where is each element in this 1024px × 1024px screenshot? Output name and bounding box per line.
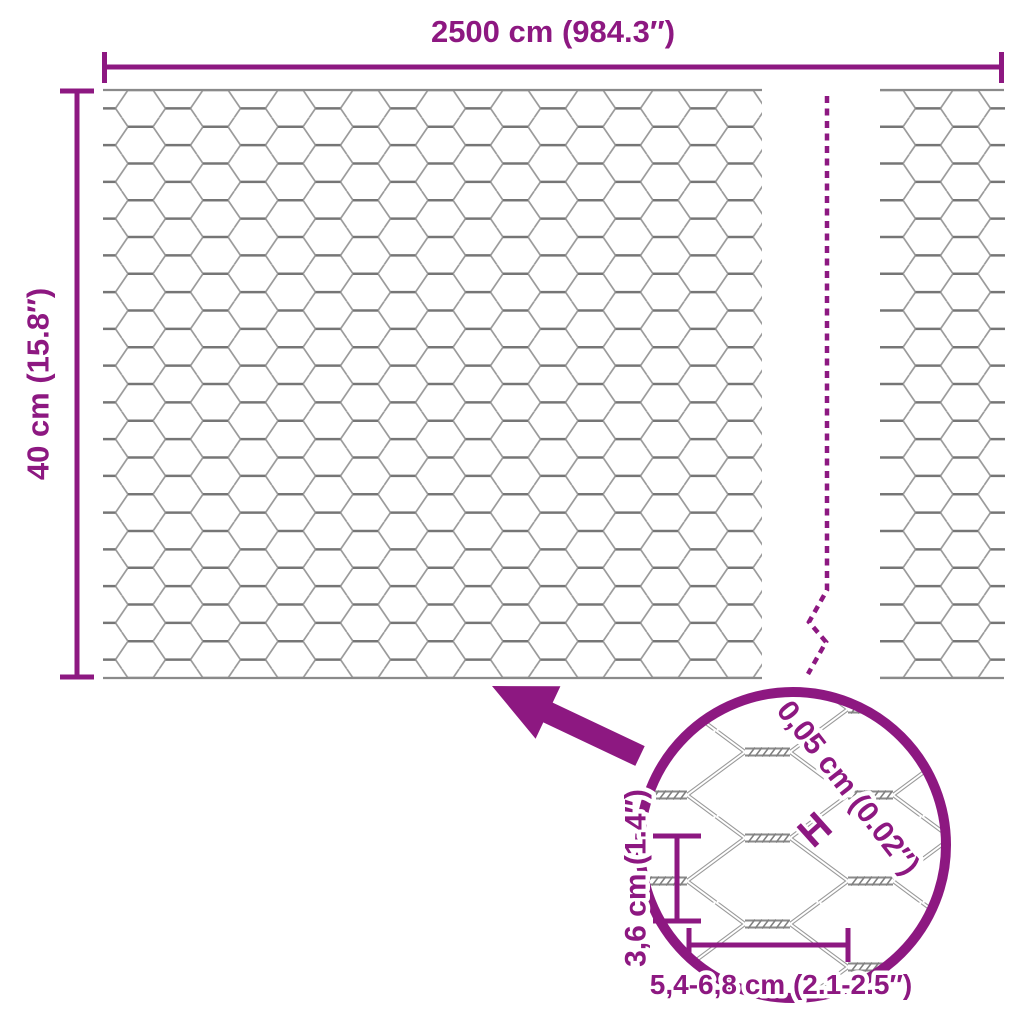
mesh-height-label: 3,6 cm (1.4″) [620, 789, 653, 967]
diagram-canvas: 2500 cm (984.3″) 40 cm (15.8″) 0,05 cm (… [0, 0, 1024, 1024]
wire-mesh-main [103, 90, 762, 678]
roll-height-label: 40 cm (15.8″) [21, 288, 56, 480]
zoom-detail-circle: 0,05 cm (0.02″) H 3,6 cm (1.4″) 5,4-6,8 … [610, 660, 980, 1024]
roll-height-dimension-line [60, 91, 94, 677]
wire-mesh-strip [880, 90, 1005, 678]
break-dashed-line [808, 96, 827, 674]
product-dimension-diagram: 2500 cm (984.3″) 40 cm (15.8″) 0,05 cm (… [0, 0, 1024, 1024]
zoom-arrow [492, 686, 645, 766]
roll-length-dimension-line [103, 52, 1003, 83]
mesh-width-label: 5,4-6,8 cm (2.1-2.5″) [650, 969, 912, 1000]
roll-length-label: 2500 cm (984.3″) [431, 14, 675, 49]
